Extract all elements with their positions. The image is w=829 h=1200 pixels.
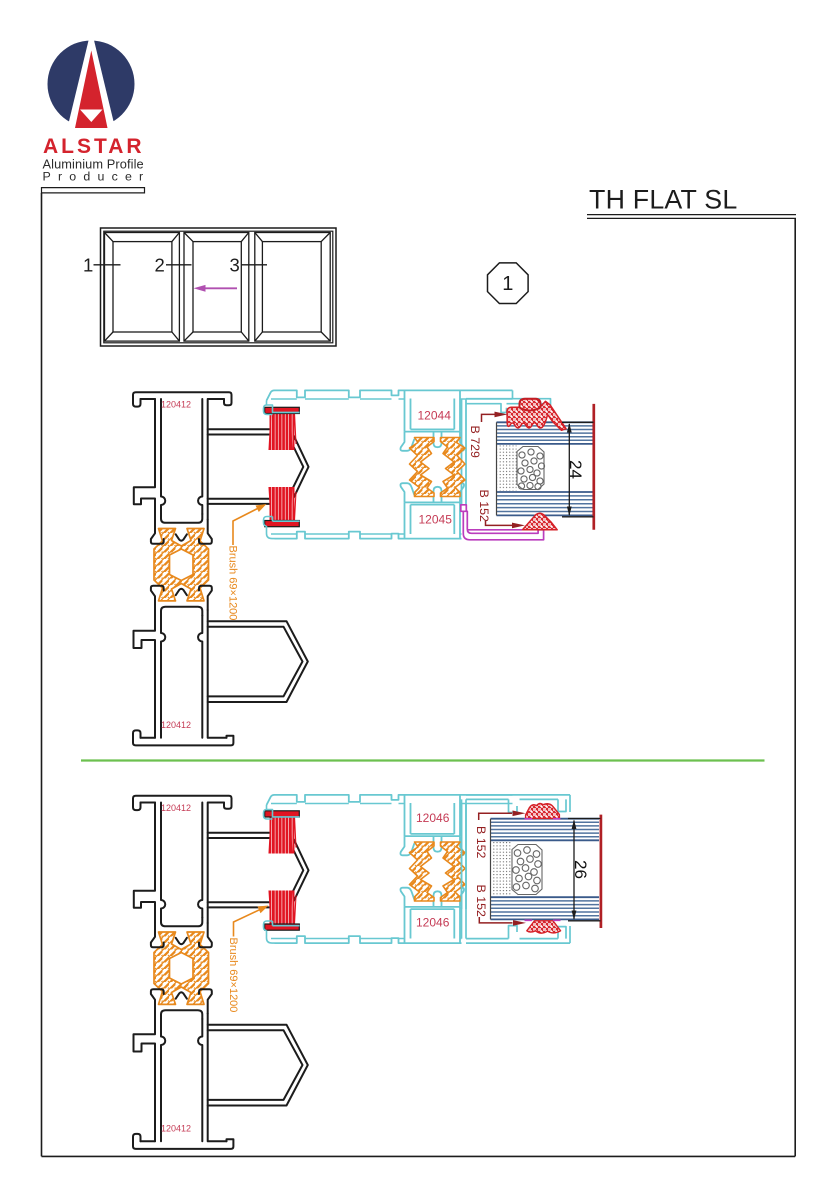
svg-text:Producer: Producer [43,170,151,184]
svg-text:12045: 12045 [419,513,453,527]
svg-text:TH FLAT SL: TH FLAT SL [589,185,737,215]
svg-text:120412: 120412 [161,720,191,730]
svg-text:B 729: B 729 [468,426,482,458]
svg-text:1: 1 [502,273,513,295]
svg-text:2: 2 [155,255,165,276]
svg-text:B 152: B 152 [474,885,488,917]
svg-text:12046: 12046 [416,916,450,930]
svg-text:Brush 69×1200: Brush 69×1200 [227,546,239,621]
svg-text:12044: 12044 [418,409,452,423]
svg-text:B 152: B 152 [474,826,488,858]
svg-text:B 152: B 152 [477,490,491,522]
svg-text:26: 26 [571,860,590,879]
svg-text:120412: 120412 [161,400,191,410]
svg-text:3: 3 [230,255,240,276]
svg-text:12046: 12046 [416,811,450,825]
svg-text:1: 1 [83,255,93,276]
svg-text:ALSTAR: ALSTAR [43,135,145,158]
svg-text:Brush 69×1200: Brush 69×1200 [227,938,239,1013]
svg-text:24: 24 [566,460,585,479]
